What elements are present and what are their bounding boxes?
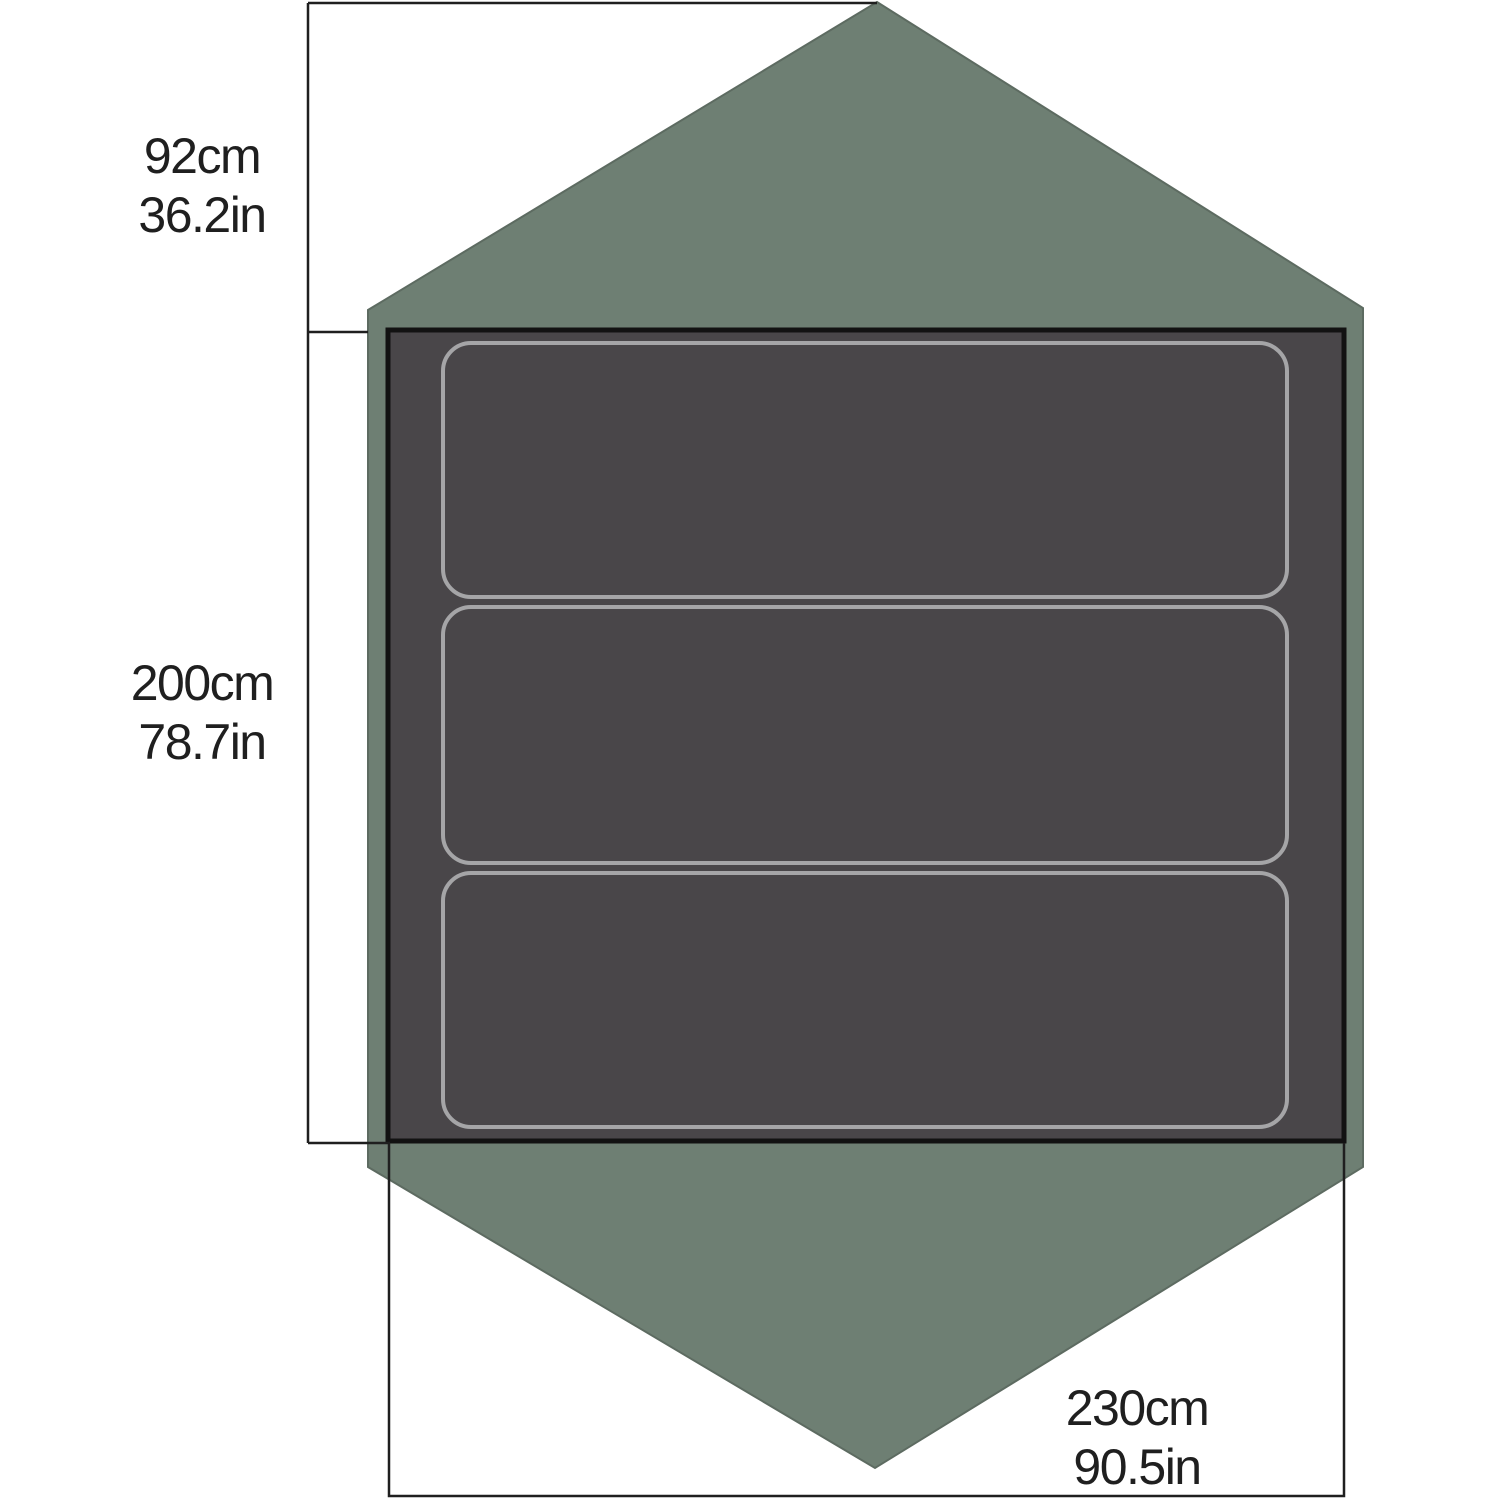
vestibule-depth-metric: 92cm [138, 127, 265, 186]
floor-length-imperial: 78.7in [131, 713, 274, 772]
floor-width-metric: 230cm [1066, 1379, 1209, 1438]
vestibule-depth-label: 92cm 36.2in [138, 127, 265, 245]
tent-dimensions-diagram: 92cm 36.2in 200cm 78.7in 230cm 90.5in [0, 0, 1500, 1500]
tent-floor [388, 330, 1344, 1141]
floor-width-imperial: 90.5in [1066, 1438, 1209, 1497]
floor-width-label: 230cm 90.5in [1066, 1379, 1209, 1497]
floor-length-metric: 200cm [131, 654, 274, 713]
floor-length-label: 200cm 78.7in [131, 654, 274, 772]
vestibule-depth-imperial: 36.2in [138, 186, 265, 245]
